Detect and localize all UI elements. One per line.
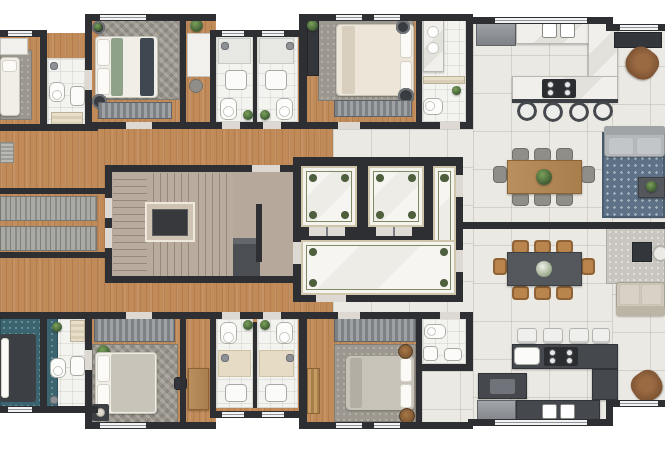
elevator-door-right [376,227,412,236]
window-segment [222,31,244,36]
wall-segment [0,124,98,131]
kitchen-bottom-sink-a [542,404,557,419]
dining-chair-b8 [581,258,595,275]
tile-floor-service [422,371,473,422]
wall-segment [0,188,105,194]
page-white-corner [613,407,665,451]
wall-segment [456,222,665,229]
dining-chair-b7 [493,258,507,275]
dining-chair-t5 [534,192,551,206]
door-opening [126,312,152,319]
page-white-corner [216,418,299,451]
window-segment [262,31,284,36]
toilet-bottom-right-bowl [427,327,436,336]
plant-bath-top-2 [260,110,270,120]
sink-bottom-right-a [423,346,438,361]
stair-flight-top [147,173,192,204]
towel-shelf-bottom-left [70,320,85,342]
door-opening [252,165,280,172]
shower-head-top-left [50,62,58,70]
window-segment [100,423,146,428]
shower-head-top-1 [221,42,229,50]
stair-void [152,209,188,236]
door-opening [85,70,92,90]
toilet-bottom-2-bowl [279,332,290,343]
door-opening [222,122,240,129]
door-opening [293,242,301,264]
wall-segment [180,312,186,429]
window-segment [336,15,362,20]
desk-chair-top [189,79,203,93]
door-opening [263,122,281,129]
hall-runner-bottom [0,226,97,251]
floor-plan [0,0,665,451]
wardrobe-guest [0,38,28,55]
stair-flight-left [113,173,147,275]
hall-mat [0,142,14,163]
shower-head-top-2 [286,42,294,50]
page-white-corner [0,413,85,451]
shower-head-bottom-left [50,396,58,404]
page-white-corner [613,0,665,24]
stool-bottom-1 [517,328,537,344]
stool-top-4 [593,101,613,121]
door-opening [456,175,463,197]
window-segment [8,407,32,412]
plant-nightstand-1a [94,23,102,31]
door-opening [85,350,92,370]
window-segment [495,420,587,425]
plant-bath-bottom-2 [260,320,270,330]
wall-segment [253,322,257,408]
plant-bath-top-1 [243,110,253,120]
elevator-cab-left [301,166,357,227]
toilet-top-2-bowl [279,106,290,117]
plant-closet-top [307,20,318,31]
sofa-bottom-back [616,306,665,316]
bench-bed-2 [334,100,412,117]
window-segment [374,423,400,428]
stool-top-3 [569,102,589,122]
wall-segment [466,312,473,371]
door-opening [338,122,360,129]
sofa-bottom-cushion-a [619,284,640,305]
dining-chair-t7 [493,166,507,183]
wall-segment [210,312,216,418]
guest-bed-pillow [2,60,17,72]
window-segment [620,401,658,406]
dining-chair-t4 [512,192,529,206]
stool-bottom-2 [543,328,563,344]
sink-bottom-2 [265,384,287,402]
wall-segment [85,312,92,429]
closet-hall-bottom [307,368,320,414]
vanity-basin-b [427,42,439,54]
dining-chair-b4 [512,286,529,300]
bed-4-throw [350,358,362,408]
door-opening [105,198,112,218]
window-segment [222,412,244,417]
sink-bottom-1 [225,384,247,402]
stool-top-1 [517,101,537,121]
stool-bottom-3 [569,328,589,344]
sofa-top-back [604,126,665,135]
bed-3-duvet [111,354,155,412]
coffee-table-bottom [632,242,652,262]
sink-bottom-left [70,356,85,376]
wall-segment [180,14,186,126]
desk-hall-top [187,33,211,77]
toilet-top-right-bowl [425,101,435,111]
elevator-hall [301,240,456,295]
nightstand-2a [396,20,410,34]
cooktop-bottom [544,347,578,366]
elevator-cab-right [368,166,424,227]
toilet-top-left-bowl [52,90,62,100]
stool-bottom-4 [592,328,610,344]
bed-1-throw [111,38,123,96]
cooktop-top [542,79,576,98]
plant-bath-top-right [452,86,461,95]
kitchen-top-sink-a [542,23,557,38]
elevator-door-left [309,227,345,236]
bed-4-pillow-a [400,358,412,382]
bed-2-throw [342,26,355,94]
wall-segment [210,30,216,126]
wall-segment [253,33,257,123]
bouquet-dining-bottom [536,261,552,277]
page-white-corner [0,0,85,30]
window-segment [100,15,146,20]
door-opening [105,228,112,248]
stair-flight-right [192,173,233,276]
wall-segment [40,319,47,413]
side-table-bottom [652,245,665,262]
sofa-top-cushion-a [608,137,634,155]
wall-segment [416,364,473,371]
sink-top-left [70,86,85,106]
wall-segment [0,312,98,319]
window-segment [8,31,32,36]
sofa-top-cushion-b [636,137,662,155]
door-opening [338,312,360,319]
wall-segment [299,14,307,126]
bench-bed-1 [98,102,172,119]
dining-chair-b6 [556,286,573,300]
closet-bedroom-3 [94,318,175,342]
plant-dining-top [536,169,552,185]
toilet-top-1-bowl [223,106,234,117]
window-segment [495,18,587,23]
sink-top-2 [265,70,287,90]
wall-segment [416,14,422,122]
counter-bath-top-right [423,76,465,84]
island-bottom-sink [514,347,540,365]
vanity-basin-a [427,26,439,38]
door-opening [456,250,463,272]
closet-bedroom-4 [334,318,416,342]
sink-top-1 [225,70,247,90]
dining-chair-t8 [581,166,595,183]
sofa-bottom-cushion-b [641,284,662,305]
stair-inner-wall [256,204,262,262]
window-segment [374,15,400,20]
stair-flight-bottom [147,240,192,276]
sink-bottom-right-b [444,348,462,361]
window-segment [262,412,284,417]
toilet-bottom-left-bowl [53,366,63,376]
toilet-bottom-1-bowl [223,332,234,343]
door-opening [126,122,152,129]
stool-top-2 [543,102,563,122]
pouf-bed-4a [398,344,413,359]
door-opening [222,312,240,319]
island-bottom-ext [592,369,618,400]
bed-1-runner [140,38,154,96]
desk-hall-bottom [188,368,209,410]
shower-head-bottom-1 [221,354,229,362]
bed-1-pillow-b [97,68,110,95]
plant-bath-bottom-1 [243,320,253,330]
bed-4-pillow-b [400,384,412,408]
window-segment [336,423,362,428]
plant-bath-bottom-left [52,322,62,332]
bed-teal-pillows [1,338,9,398]
door-opening [440,312,460,319]
wall-segment [466,14,473,126]
dining-chair-b5 [534,286,551,300]
door-opening [440,122,460,129]
kitchen-bottom-sink-b [560,404,575,419]
dining-chair-t6 [556,192,573,206]
door-opening [263,312,281,319]
page-white-corner [216,0,299,30]
counter-bottom-inset [490,379,515,394]
window-segment [620,25,658,30]
bed-3-pillow-a [97,355,110,382]
plant-coffee-top [646,181,657,192]
hall-runner-top [0,196,97,221]
wall-segment [0,252,105,258]
door-opening [316,295,346,302]
shower-head-bottom-2 [286,354,294,362]
bed-1-pillow-a [97,39,110,66]
wall-segment [40,30,47,126]
kitchen-top-sink-b [560,23,575,38]
